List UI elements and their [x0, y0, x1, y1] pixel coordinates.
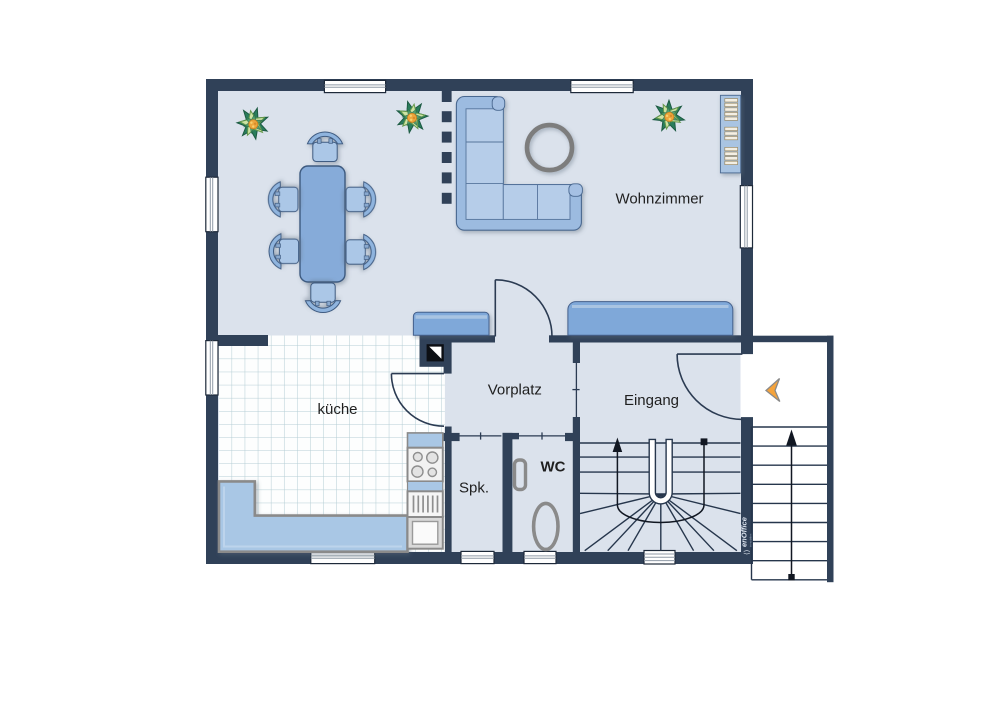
- svg-text:Wohnzimmer: Wohnzimmer: [615, 191, 703, 208]
- svg-text:Eingang: Eingang: [624, 392, 679, 409]
- svg-text:Vorplatz: Vorplatz: [488, 382, 542, 399]
- svg-text:enOffice: enOffice: [740, 517, 749, 547]
- svg-text:küche: küche: [317, 401, 357, 418]
- svg-text:Spk.: Spk.: [459, 480, 489, 497]
- svg-text:WC: WC: [541, 459, 566, 476]
- svg-text:⟨⟩: ⟨⟩: [743, 549, 751, 555]
- svg-text:immobilien: immobilien: [749, 533, 753, 547]
